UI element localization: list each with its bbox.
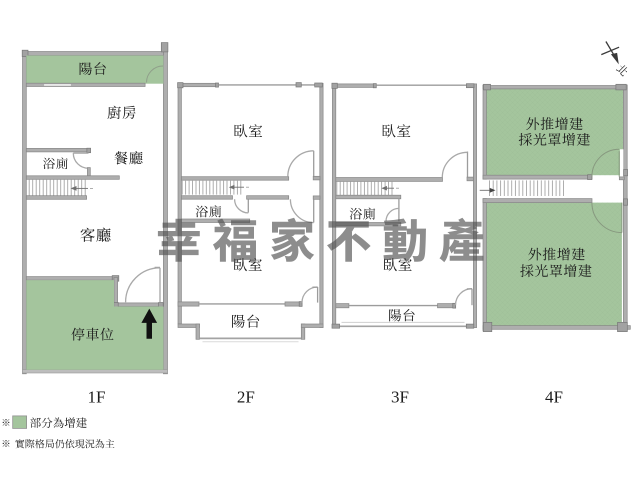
svg-text:2F: 2F [237,388,255,407]
svg-text:3F: 3F [391,388,409,407]
svg-text:1F: 1F [88,388,106,407]
svg-text:4F: 4F [545,388,563,407]
